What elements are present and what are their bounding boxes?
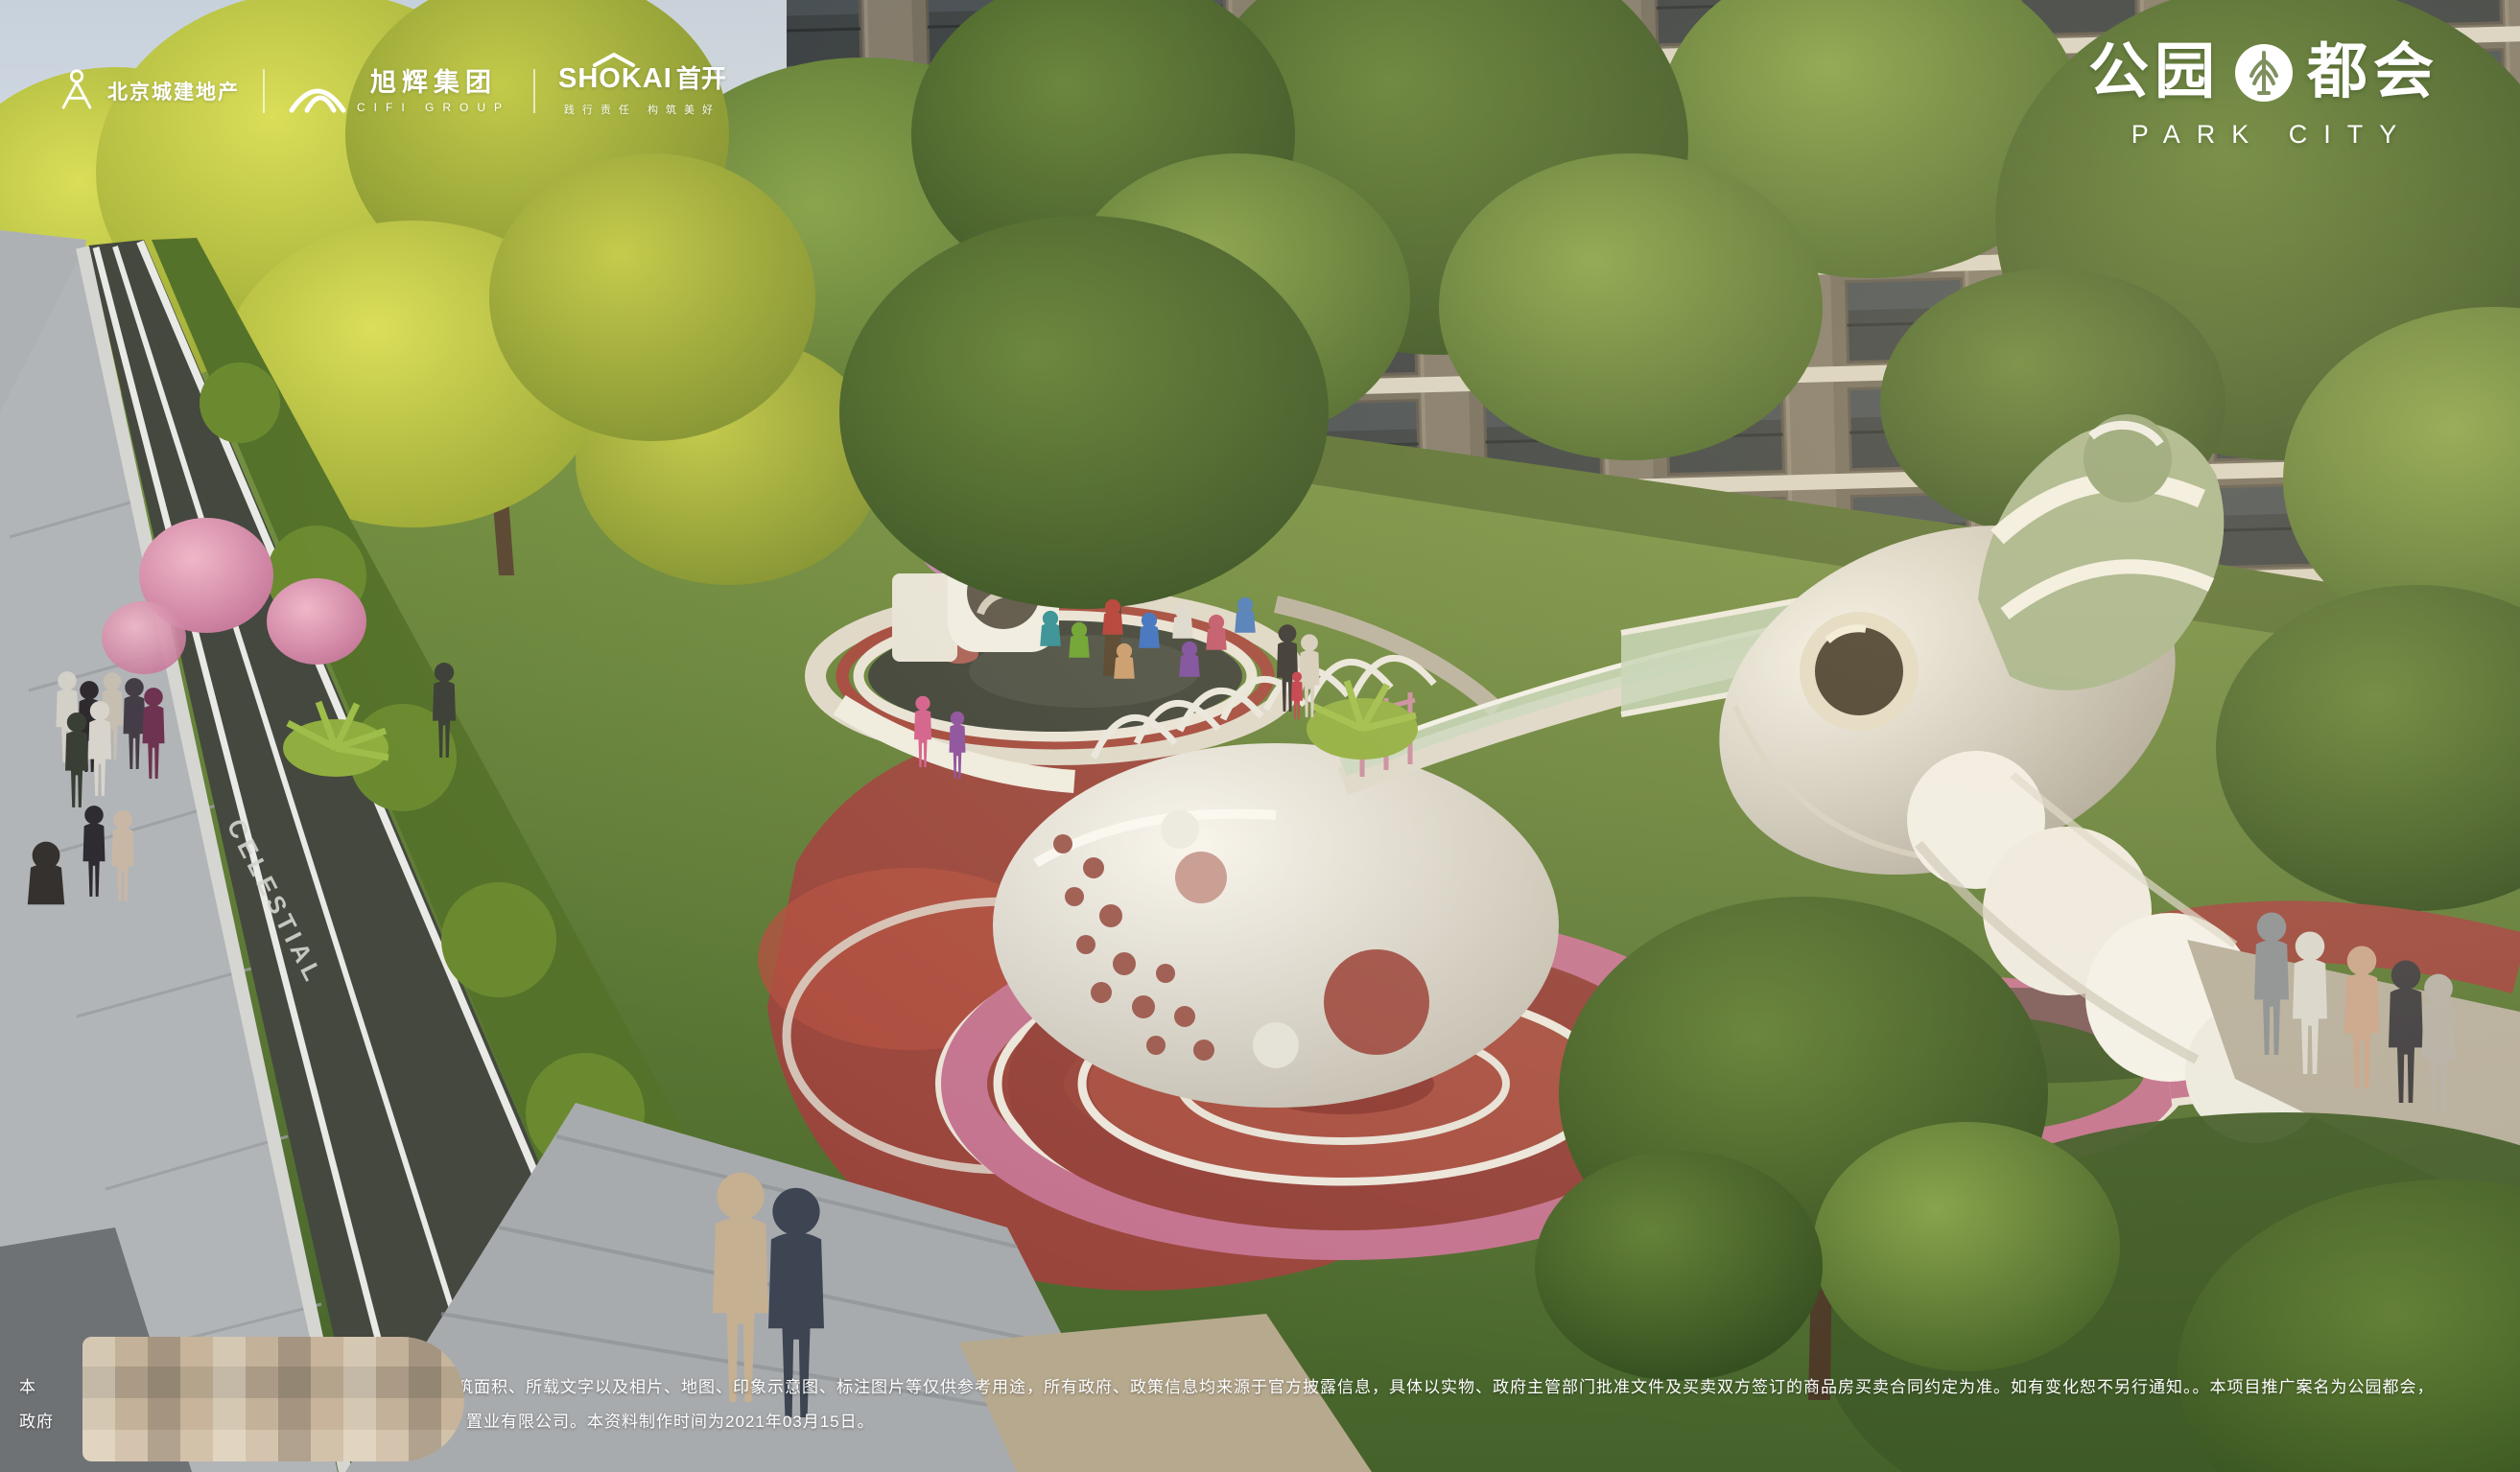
sunlight-overlay: [0, 0, 2520, 1472]
censor-mosaic: [82, 1337, 464, 1461]
tree-badge-icon: [2234, 43, 2294, 103]
project-name-right: 都会: [2307, 42, 2439, 103]
cifi-name-cn: 旭辉集团: [370, 70, 497, 96]
shokai-roof-icon: [591, 52, 637, 67]
disclaimer-line1-prefix: 本: [19, 1379, 36, 1395]
logo-cifi: 旭辉集团 CIFI GROUP: [288, 68, 510, 114]
logo-shokai: SHOKAI 首开 践行责任 构筑美好: [558, 65, 726, 117]
shokai-slogan: 践行责任 构筑美好: [564, 102, 720, 117]
shokai-name-cn: 首开: [676, 66, 726, 91]
logo-divider: [263, 69, 265, 113]
disclaimer-line1: 筑面积、所载文字以及相片、地图、印象示意图、标注图片等仅供参考用途，所有政府、政…: [457, 1379, 2435, 1395]
cifi-mountain-icon: [288, 68, 347, 114]
disclaimer-line2-prefix: 政府: [19, 1414, 54, 1430]
project-name-en: PARK CITY: [2088, 120, 2439, 150]
scene-illustration: CELESTIAL: [0, 0, 2520, 1472]
logo-divider: [533, 69, 535, 113]
logo-bucg: 北京城建地产: [56, 68, 240, 114]
cifi-name-en: CIFI GROUP: [357, 102, 510, 113]
project-logo: 公园 都会 PARK CITY: [2088, 42, 2439, 150]
shokai-name-latin: SHOKAI: [558, 65, 672, 93]
developer-logo-strip: 北京城建地产 旭辉集团 CIFI GROUP SHOKAI 首开 践行责任 构筑…: [56, 65, 726, 117]
project-name-left: 公园: [2088, 42, 2221, 103]
bucg-figure-icon: [56, 68, 98, 114]
disclaimer-line2: 置业有限公司。本资料制作时间为2021年03月15日。: [466, 1414, 875, 1430]
bucg-name: 北京城建地产: [107, 77, 240, 105]
